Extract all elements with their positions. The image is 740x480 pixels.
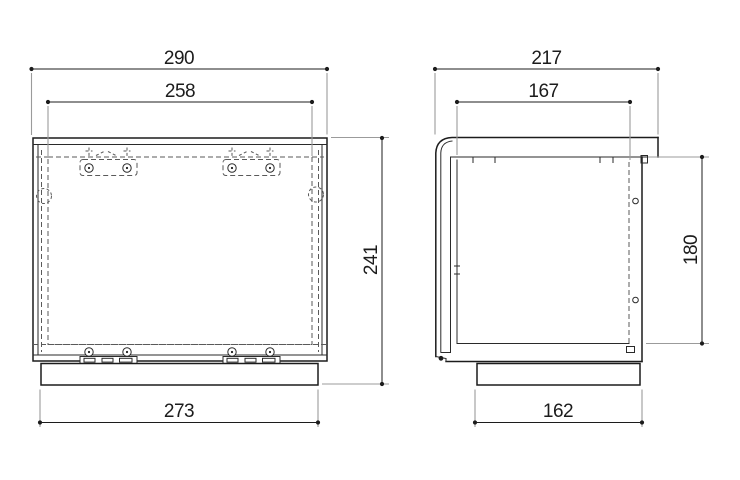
- dimension-terminator: [640, 420, 644, 424]
- dimension-label-front-base-width: 273: [164, 401, 194, 422]
- dimension-terminator: [656, 67, 660, 71]
- dimension-label-side-inner-height: 180: [681, 235, 702, 265]
- bracket-screw-center: [231, 167, 233, 169]
- bracket-screw-center: [269, 167, 271, 169]
- dimension-terminator: [455, 100, 459, 104]
- dimension-terminator: [380, 136, 384, 140]
- front-view: [33, 138, 327, 385]
- dimension-label-front-overall-width: 290: [164, 48, 194, 69]
- dimension-terminator: [473, 420, 477, 424]
- technical-drawing: 290 258 241 273 217: [0, 0, 740, 480]
- hinge-screw-center: [126, 351, 128, 353]
- dimension-terminator: [380, 382, 384, 386]
- door-pivot-dot: [439, 356, 444, 361]
- hinge-screw-center: [269, 351, 271, 353]
- dimension-label-front-overall-height: 241: [361, 245, 382, 275]
- hinge-screw-center: [231, 351, 233, 353]
- dimension-terminator: [325, 67, 329, 71]
- hinge-screw-center: [88, 351, 90, 353]
- dimension-terminator: [316, 420, 320, 424]
- dimension-label-front-inner-width: 258: [165, 81, 195, 102]
- dimension-label-side-inner-depth: 167: [528, 81, 558, 102]
- bracket-screw-center: [88, 167, 90, 169]
- dimension-terminator: [700, 341, 704, 345]
- front-outer-box: [33, 138, 327, 361]
- dimension-label-side-base-depth: 162: [543, 401, 573, 422]
- dimension-terminator: [310, 100, 314, 104]
- dimension-terminator: [700, 155, 704, 159]
- bracket-screw-center: [126, 167, 128, 169]
- dimension-terminator: [29, 67, 33, 71]
- dimension-terminator: [46, 100, 50, 104]
- dimension-terminator: [433, 67, 437, 71]
- technical-drawing-page: 290 258 241 273 217: [0, 0, 740, 480]
- dimension-terminator: [628, 100, 632, 104]
- dimension-label-side-overall-depth: 217: [531, 48, 561, 69]
- dimension-terminator: [38, 420, 42, 424]
